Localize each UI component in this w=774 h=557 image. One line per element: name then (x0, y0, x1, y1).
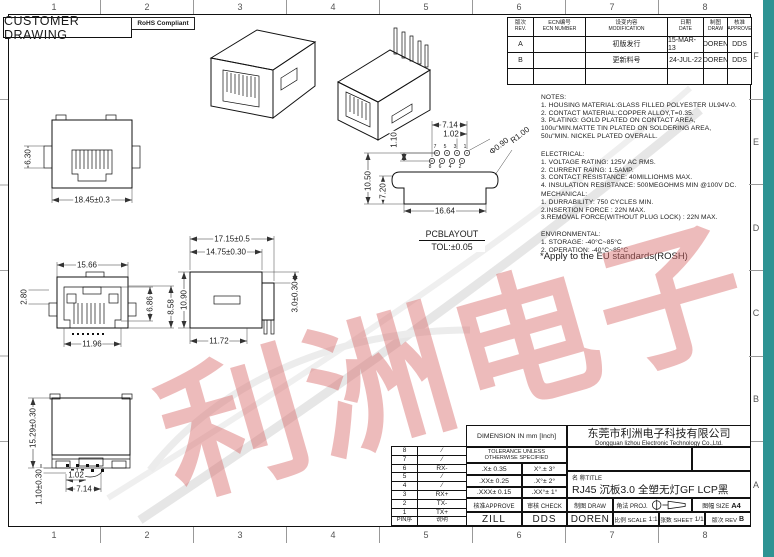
tolerance-header-cell: TOLERANCE UNLESS OTHERWISE SPECIFIED (466, 447, 567, 463)
draw-value-cell: DOREN (567, 512, 613, 526)
dim-label: 8.58 (167, 298, 176, 316)
pcb-pin-number: 1 (464, 144, 467, 150)
rev-value: B (739, 516, 744, 523)
rev-col-header: 设变内容MODIFICATION (586, 18, 668, 37)
tolerance-cell: .X± 0.35 (466, 463, 522, 475)
projection-cell: 角法 PROJ. (613, 498, 692, 512)
sheet-label: 张数 SHEET (660, 515, 693, 524)
pin-row: 2TX- (392, 500, 467, 509)
rev-cell: 更新料号 (586, 53, 668, 69)
pin-row: 5∕ (392, 473, 467, 482)
rev-header-en: DRAW (708, 27, 723, 32)
pin-row: 8∕ (392, 447, 467, 456)
rev-cell (534, 69, 586, 85)
iso-view-2-drawing (338, 28, 430, 140)
pin-desc: ∕ (418, 482, 467, 491)
part-title: RJ45 沉板3.0 全塑无灯GF LCP黑 (572, 482, 728, 497)
rev-cell: 24-JUL-22 (668, 53, 704, 69)
pcb-pin-number: 5 (444, 144, 447, 150)
dim-label: 6.30 (24, 148, 33, 166)
approve-value-cell: ZILL (466, 512, 522, 526)
dim-label: 14.75±0.30 (205, 248, 247, 257)
company-cell: 东莞市利洲电子科技有限公司 Dongguan lizhou Electronic… (567, 425, 751, 447)
pcb-pin-number: 2 (459, 164, 462, 170)
pcb-pin-number: 4 (449, 164, 452, 170)
pin-number: 3 (392, 491, 418, 500)
pin-desc: ∕ (418, 447, 467, 456)
rev-cell: B (508, 53, 534, 69)
size-label: 图幅 SIZE (702, 501, 729, 510)
customer-drawing-sheet: 1 2 3 4 5 6 7 8 1 2 3 4 5 6 7 8 F E D C … (0, 0, 774, 557)
dim-label: 17.15±0.5 (213, 235, 251, 244)
pcb-pin-number: 8 (429, 164, 432, 170)
dim-label: 10.50 (364, 170, 373, 192)
pcb-pin-number: 7 (434, 144, 437, 150)
projection-symbol (651, 499, 689, 511)
size-value: A4 (731, 501, 741, 510)
dim-label: 1.02 (67, 471, 85, 480)
pin-desc: ∕ (418, 456, 467, 465)
rev-col-header: 日期DATE (668, 18, 704, 37)
dim-label: 3.0±0.30 (291, 280, 300, 313)
tolerance-cell: .XX°± 1° (522, 487, 567, 498)
pin-row: 3RX+ (392, 491, 467, 500)
rev-cell: DDS (728, 37, 752, 53)
rev-header-en: APPROVE (728, 27, 752, 32)
sheet-cell: 张数 SHEET 1/1 (659, 512, 705, 526)
scale-cell: 比例 SCALE 1:1 (613, 512, 659, 526)
size-cell: 图幅 SIZE A4 (692, 498, 751, 512)
rev-header-en: DATE (679, 27, 692, 32)
dim-label: 11.96 (81, 340, 102, 349)
rev-cell (586, 69, 668, 85)
pin-desc: RX- (418, 465, 467, 474)
dim-label: 1.10±0.30 (35, 468, 44, 506)
rev-cell (534, 37, 586, 53)
pin-footer-desc: 说明 (418, 517, 467, 526)
rev-col-header: 版次REV. (508, 18, 534, 37)
scale-label: 比例 SCALE (614, 515, 646, 524)
empty-cell (692, 447, 751, 471)
pin-desc: TX- (418, 500, 467, 509)
title-label: 名 称TITLE (572, 473, 602, 482)
pcb-layout-tolerance: TOL:±0.05 (419, 241, 485, 252)
pin-row: 6RX- (392, 465, 467, 474)
rev-cell: A (508, 37, 534, 53)
pin-number: 7 (392, 456, 418, 465)
rev-cell (704, 69, 728, 85)
rev-col-header: ECN编号ECN NUMBER (534, 18, 586, 37)
rev-header-en: REV. (515, 27, 526, 32)
approve-label-cell: 核准APPROVE (466, 498, 522, 512)
pin-number: 2 (392, 500, 418, 509)
title-block: DIMENSION IN mm [Inch] 东莞市利洲电子科技有限公司 Don… (466, 425, 751, 526)
dim-label: 6.86 (146, 295, 155, 313)
rev-cell: DDS (728, 53, 752, 69)
rev-cell (668, 69, 704, 85)
pin-number: 5 (392, 473, 418, 482)
pin-number: 6 (392, 465, 418, 474)
front-view-drawing (24, 115, 140, 203)
dim-label: 1.02 (442, 130, 460, 139)
pcb-layout-caption: PCBLAYOUT TOL:±0.05 (419, 229, 485, 252)
dim-label: 15.66 (76, 261, 98, 270)
customer-drawing-label: CUSTOMER DRAWING (3, 17, 132, 38)
rev-label: 版次 REV (712, 515, 737, 524)
dim-label: 18.45±0.3 (73, 196, 111, 205)
rev-cell (534, 53, 586, 69)
pin-number: 8 (392, 447, 418, 456)
pin-desc: RX+ (418, 491, 467, 500)
check-value-cell: DDS (522, 512, 567, 526)
check-label-cell: 审核 CHECK (522, 498, 567, 512)
dimension-unit-cell: DIMENSION IN mm [Inch] (466, 425, 567, 447)
projection-label: 角法 PROJ. (616, 501, 647, 510)
rev-cell: 15-MAR-13 (668, 37, 704, 53)
tolerance-cell: .XX± 0.25 (466, 475, 522, 487)
pcb-layout-title: PCBLAYOUT (419, 229, 485, 241)
rev-cell (508, 69, 534, 85)
dim-label: 11.72 (208, 337, 229, 346)
pin-number: 4 (392, 482, 418, 491)
dim-label: 1.10 (390, 131, 399, 149)
pin-desc: ∕ (418, 473, 467, 482)
rev-header-en: MODIFICATION (608, 27, 644, 32)
iso-view-1-drawing (211, 30, 315, 118)
dim-label: 7.14 (75, 485, 93, 494)
sheet-value: 1/1 (695, 516, 704, 523)
pin-assignment-table: 8∕ 7∕ 6RX- 5∕ 4∕ 3RX+ 2TX- 1TX+ PIN序说明 (391, 446, 467, 526)
tolerance-cell: .X°± 2° (522, 475, 567, 487)
rev-cell: 初版发行 (586, 37, 668, 53)
dim-label: 16.64 (434, 207, 456, 216)
pin-table-footer: PIN序说明 (392, 517, 467, 526)
mechanical-section: MECHANICAL: 1. DURRABILITY: 750 CYCLES M… (541, 191, 749, 222)
draw-label-cell: 制图 DRAW (567, 498, 613, 512)
rohs-compliant-badge: RoHS Compliant (131, 17, 195, 30)
notes-section: NOTES: 1. HOUSING MATERIAL:GLASS FILLED … (541, 94, 749, 141)
tolerance-cell: .XXX± 0.15 (466, 487, 522, 498)
pin-row: 4∕ (392, 482, 467, 491)
pin-footer-label: PIN序 (392, 517, 418, 526)
title-cell: 名 称TITLE RJ45 沉板3.0 全塑无灯GF LCP黑 (567, 471, 751, 498)
rev-cell: DOREN (704, 37, 728, 53)
dim-label: 7.20 (379, 182, 388, 200)
dim-label: 10.90 (180, 289, 189, 311)
pcb-pin-number: 3 (454, 144, 457, 150)
scale-value: 1:1 (649, 516, 658, 523)
tolerance-cell: X°.± 3° (522, 463, 567, 475)
rev-col-header: 核准APPROVE (728, 18, 752, 37)
eu-standards-note: *Apply to the EU standards(ROSH) (540, 251, 688, 262)
company-name-zh: 东莞市利洲电子科技有限公司 (588, 425, 731, 441)
rev-cell (728, 69, 752, 85)
rev-col-header: 制图DRAW (704, 18, 728, 37)
electrical-section: ELECTRICAL: 1. VOLTAGE RATING: 125V AC R… (541, 151, 749, 190)
pcb-pin-number: 6 (439, 164, 442, 170)
pin-row: 7∕ (392, 456, 467, 465)
dim-label: 7.14 (441, 121, 459, 130)
rev-header-en: ECN NUMBER (543, 27, 577, 32)
rev-cell: DOREN (704, 53, 728, 69)
rev-cell-title: 版次 REV B (705, 512, 751, 526)
empty-cell (567, 447, 692, 471)
dim-label: 2.80 (20, 288, 29, 306)
dim-label: 15.29±0.30 (29, 407, 38, 449)
revision-table: 版次REV. ECN编号ECN NUMBER 设变内容MODIFICATION … (507, 17, 752, 85)
